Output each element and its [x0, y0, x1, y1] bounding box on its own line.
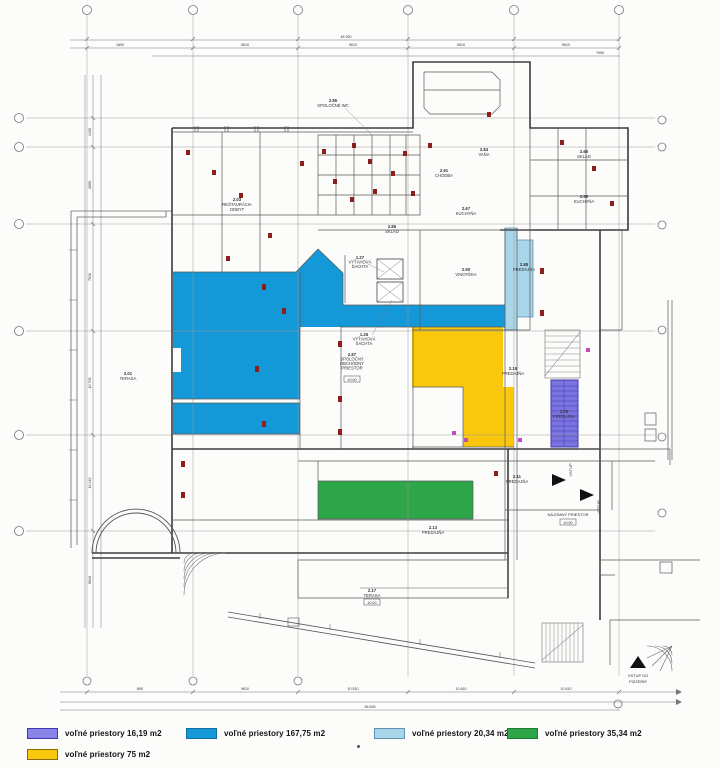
svg-text:10 510: 10 510 [348, 687, 359, 691]
legend-label-purple: voľné priestory 16,19 m2 [65, 729, 162, 738]
svg-text:2.69KUCHYŇA: 2.69KUCHYŇA [574, 194, 595, 204]
svg-text:2.67KUCHYŇA: 2.67KUCHYŇA [456, 206, 477, 216]
svg-text:9610: 9610 [88, 576, 92, 584]
svg-text:10 410: 10 410 [88, 478, 92, 489]
svg-text:±0,00: ±0,00 [348, 378, 357, 382]
svg-text:±0,00: ±0,00 [368, 601, 377, 605]
svg-text:9810: 9810 [457, 43, 465, 47]
dimension-labels: 48 390 1800 9610 9610 9810 9610 7950 140… [88, 35, 604, 709]
svg-text:1.27VÝŤAHOVÁŠACHTA: 1.27VÝŤAHOVÁŠACHTA [349, 255, 372, 269]
legend-label-green: voľné priestory 35,34 m2 [545, 729, 642, 738]
legend-item-lightblue: voľné priestory 20,34 m2 [374, 727, 509, 740]
entrance-arrow-1 [552, 474, 566, 486]
svg-text:9610: 9610 [349, 43, 357, 47]
svg-text:2.84VAŇA: 2.84VAŇA [478, 147, 489, 157]
svg-text:2.13PREDAJŇA: 2.13PREDAJŇA [422, 525, 445, 535]
svg-text:2.03REŠTAURÁCIAODBYT: 2.03REŠTAURÁCIAODBYT [222, 197, 252, 212]
svg-text:9610: 9610 [562, 43, 570, 47]
svg-text:10 810: 10 810 [456, 687, 467, 691]
floor-plan-drawing: 48 390 1800 9610 9610 9810 9610 7950 140… [0, 0, 719, 768]
legend-item-green: voľné priestory 35,34 m2 [507, 727, 642, 740]
floor-plan-canvas: 48 390 1800 9610 9610 9810 9610 7950 140… [0, 0, 719, 768]
svg-text:2.01TERASA: 2.01TERASA [120, 371, 137, 381]
svg-text:1.26VÝŤAHOVÁŠACHTA: 1.26VÝŤAHOVÁŠACHTA [353, 332, 376, 346]
ramp [228, 588, 535, 668]
najomny-priestor-label: NÁJOMNÝ PRIESTOR [547, 512, 588, 517]
svg-text:2.86SKLAD: 2.86SKLAD [385, 224, 399, 234]
legend-swatch-yellow [27, 749, 58, 760]
legend-swatch-green [507, 728, 538, 739]
svg-text:2.90VINOTÉKA: 2.90VINOTÉKA [455, 267, 476, 277]
svg-text:7950: 7950 [596, 51, 604, 55]
upper-stair [545, 330, 580, 378]
svg-text:2.85SPOLOČNÉ WC: 2.85SPOLOČNÉ WC [317, 98, 348, 108]
svg-text:890: 890 [137, 687, 143, 691]
svg-text:48 390: 48 390 [341, 35, 352, 39]
legend-swatch-blue [186, 728, 217, 739]
green-region [318, 481, 473, 519]
legend-label-blue: voľné priestory 167,75 m2 [224, 729, 325, 738]
lightblue-region [505, 228, 533, 330]
vstup-label-2: VSTUP [596, 500, 601, 514]
svg-text:±0,00: ±0,00 [564, 521, 573, 525]
annotations: NÁJOMNÝ PRIESTOR ±0,00 VSTUP VSTUP VSTUP… [547, 463, 648, 684]
legend-label-yellow: voľné priestory 75 m2 [65, 750, 150, 759]
legend-item-blue: voľné priestory 167,75 m2 [186, 727, 325, 740]
dimension-lines [60, 37, 682, 710]
svg-text:2.11PREDAJŇA: 2.11PREDAJŇA [506, 474, 529, 484]
vstup-label-1: VSTUP [568, 463, 573, 477]
fan-stairs-left [184, 553, 226, 595]
blue-notch-white [173, 348, 181, 372]
bottom-stair [542, 623, 583, 662]
svg-text:2.66SKLAD: 2.66SKLAD [577, 149, 591, 159]
stray-dot [357, 745, 360, 748]
legend-item-purple: voľné priestory 16,19 m2 [27, 727, 162, 740]
svg-text:56 635: 56 635 [365, 705, 376, 709]
blue-region-lower [173, 403, 300, 434]
svg-text:9610: 9610 [241, 687, 249, 691]
legend-swatch-purple [27, 728, 58, 739]
svg-text:9610: 9610 [241, 43, 249, 47]
svg-text:7610: 7610 [88, 273, 92, 281]
svg-text:2.91CHODBA: 2.91CHODBA [435, 168, 453, 178]
svg-text:1800: 1800 [116, 43, 124, 47]
svg-text:2.87SPOLOČNÝOBCHODNÝPRIESTOR: 2.87SPOLOČNÝOBCHODNÝPRIESTOR [340, 352, 364, 371]
svg-text:2.17TERASA: 2.17TERASA [364, 588, 381, 598]
svg-text:1400: 1400 [88, 128, 92, 136]
legend-label-lightblue: voľné priestory 20,34 m2 [412, 729, 509, 738]
legend-item-yellow: voľné priestory 75 m2 [27, 748, 150, 761]
pizzeria-entrance-arrow [630, 656, 646, 668]
vstup-do-pizzerie-label: VSTUP DO [628, 673, 648, 678]
fan-stairs-right [647, 646, 672, 671]
entrance-arrow-2 [580, 489, 594, 501]
legend-swatch-lightblue [374, 728, 405, 739]
svg-text:2805: 2805 [88, 181, 92, 189]
svg-text:10 610: 10 610 [561, 687, 572, 691]
svg-text:PIZZERIE: PIZZERIE [629, 679, 647, 684]
svg-text:10 705: 10 705 [88, 378, 92, 389]
